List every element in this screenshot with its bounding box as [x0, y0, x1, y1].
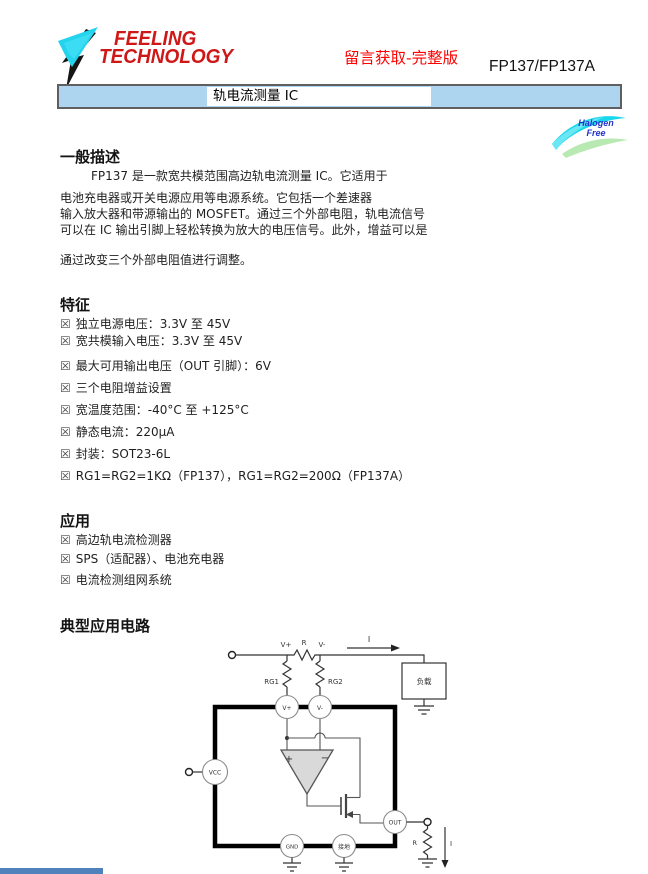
checkbox-bullet-icon: ☒: [60, 333, 71, 349]
application-item: ☒SPS（适配器）、电池充电器: [60, 551, 480, 567]
checkbox-bullet-icon: ☒: [60, 551, 71, 567]
v-minus-label: V-: [319, 641, 326, 649]
datasheet-page: FEELING TECHNOLOGY TECHNOLOGY 留言获取-完整版 F…: [0, 0, 648, 874]
vcc-terminal: [186, 769, 193, 776]
application-item: ☒高边轨电流检测器: [60, 532, 480, 548]
logo-reflection: TECHNOLOGY: [99, 64, 339, 80]
feature-item: ☒最大可用输出电压（OUT 引脚）：6V: [60, 358, 540, 374]
checkbox-bullet-icon: ☒: [60, 424, 71, 440]
checkbox-bullet-icon: ☒: [60, 380, 71, 396]
application-text: 高边轨电流检测器: [76, 532, 172, 548]
halogen-free-label: Halogen Free: [566, 118, 626, 138]
pin-vcc-label: VCC: [209, 770, 221, 777]
sense-resistor-label: R: [302, 639, 307, 647]
section-title-general: 一般描述: [60, 146, 120, 167]
feature-text: RG1=RG2=1KΩ（FP137），RG1=RG2=200Ω（FP137A）: [76, 468, 410, 484]
general-line: 通过改变三个外部电阻值进行调整。: [60, 252, 480, 268]
feature-item: ☒宽共模输入电压：3.3V 至 45V: [60, 333, 540, 349]
rg1-resistor: [283, 661, 291, 687]
ground-icon: [418, 855, 437, 867]
section-title-applications: 应用: [60, 510, 90, 531]
output-network: R I: [407, 819, 453, 869]
opamp-output-wire: [307, 794, 341, 806]
opamp: + −: [281, 719, 360, 807]
feature-text: 独立电源电压：3.3V 至 45V: [76, 316, 230, 332]
footer-accent-bar: [0, 868, 103, 874]
features-list: ☒独立电源电压：3.3V 至 45V ☒宽共模输入电压：3.3V 至 45V ☒…: [60, 316, 540, 484]
feature-item: ☒封装：SOT23-6L: [60, 446, 540, 462]
checkbox-bullet-icon: ☒: [60, 572, 71, 588]
ground-icon: [414, 699, 434, 714]
application-item: ☒电流检测组网系统: [60, 572, 480, 588]
opamp-plus-label: +: [285, 754, 293, 765]
typical-application-circuit-diagram: V+ R V- I 负载 RG1 RG2: [180, 630, 470, 874]
output-terminal: [424, 819, 431, 826]
mosfet: [341, 794, 384, 823]
section-title-features: 特征: [60, 294, 90, 315]
general-description: FP137 是一款宽共模范围高边轨电流测量 IC。它适用于 电池充电器或开关电源…: [60, 168, 480, 268]
current-in-label: I: [368, 635, 370, 644]
output-resistor: [424, 829, 432, 855]
feature-text: 三个电阻增益设置: [76, 380, 172, 396]
pin-out-label: OUT: [389, 820, 402, 827]
checkbox-bullet-icon: ☒: [60, 316, 71, 332]
general-line: FP137 是一款宽共模范围高边轨电流测量 IC。它适用于: [60, 168, 480, 184]
feature-item: ☒三个电阻增益设置: [60, 380, 540, 396]
input-terminal: [229, 652, 236, 659]
general-line: 可以在 IC 输出引脚上轻松转换为放大的电压信号。此外，增益可以是: [60, 222, 480, 238]
feature-item: ☒宽温度范围：-40°C 至 +125°C: [60, 402, 540, 418]
pin-gnd2-label: 接地: [338, 843, 350, 851]
feature-text: 宽共模输入电压：3.3V 至 45V: [76, 333, 242, 349]
gain-resistors: RG1 RG2: [264, 655, 343, 696]
checkbox-bullet-icon: ☒: [60, 358, 71, 374]
general-line: 电池充电器或开关电源应用等电源系统。它包括一个差速器: [60, 190, 480, 206]
pin-vminus-label: V-: [317, 705, 323, 712]
rg2-resistor: [316, 661, 324, 687]
checkbox-bullet-icon: ☒: [60, 402, 71, 418]
feature-item: ☒独立电源电压：3.3V 至 45V: [60, 316, 540, 332]
pin-gnd-label: GND: [286, 845, 299, 851]
rg1-label: RG1: [264, 678, 279, 686]
part-number: FP137/FP137A: [489, 58, 595, 76]
pin-vplus-label: V+: [282, 705, 291, 712]
feature-text: 最大可用输出电压（OUT 引脚）：6V: [76, 358, 271, 374]
feature-item: ☒静态电流：220μA: [60, 424, 540, 440]
ground-icon: [335, 858, 353, 872]
sense-resistor: [290, 650, 320, 660]
opamp-minus-label: −: [321, 753, 329, 764]
ground-icon: [283, 858, 301, 872]
checkbox-bullet-icon: ☒: [60, 532, 71, 548]
checkbox-bullet-icon: ☒: [60, 446, 71, 462]
rg2-label: RG2: [328, 678, 343, 686]
v-plus-label: V+: [281, 641, 292, 649]
application-text: 电流检测组网系统: [76, 572, 172, 588]
feature-text: 封装：SOT23-6L: [76, 446, 170, 462]
applications-list: ☒高边轨电流检测器 ☒SPS（适配器）、电池充电器 ☒电流检测组网系统: [60, 532, 480, 588]
halogen-free-badge: Halogen Free: [548, 110, 630, 158]
input-rail: V+ R V- I: [229, 635, 425, 663]
general-line: 输入放大器和带源输出的 MOSFET。通过三个外部电阻，轨电流信号: [60, 206, 480, 222]
current-out-label: I: [450, 840, 452, 848]
feature-item: ☒RG1=RG2=1KΩ（FP137），RG1=RG2=200Ω（FP137A）: [60, 468, 540, 484]
section-title-circuit: 典型应用电路: [60, 615, 150, 636]
application-text: SPS（适配器）、电池充电器: [76, 551, 224, 567]
title-banner: 轨电流测量 IC: [57, 84, 622, 109]
checkbox-bullet-icon: ☒: [60, 468, 71, 484]
feature-text: 宽温度范围：-40°C 至 +125°C: [76, 402, 249, 418]
load-label: 负载: [417, 676, 432, 686]
banner-title: 轨电流测量 IC: [207, 87, 431, 106]
feature-text: 静态电流：220μA: [76, 424, 175, 440]
load: 负载: [402, 663, 446, 714]
promo-watermark-text: 留言获取-完整版: [344, 46, 458, 68]
output-resistor-label: R: [412, 839, 417, 847]
